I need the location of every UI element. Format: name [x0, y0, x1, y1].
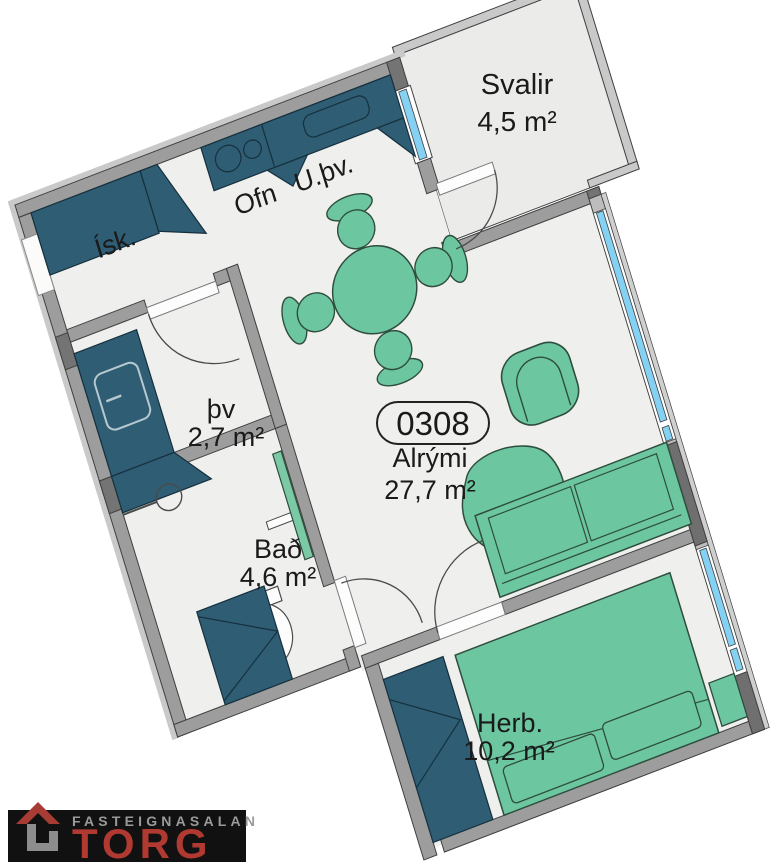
label-thvottahus: þv — [207, 394, 236, 424]
logo-brand-text: TORG — [72, 820, 213, 867]
label-bad: Bað — [254, 534, 302, 564]
label-alrymi-area: 27,7 m² — [384, 475, 476, 505]
label-alrymi: Alrými — [393, 443, 468, 473]
label-thvottahus-area: 2,7 m² — [188, 422, 265, 452]
agency-logo: FASTEIGNASALAN TORG — [8, 802, 259, 867]
label-svalir: Svalir — [481, 69, 554, 101]
label-svalir-area: 4,5 m² — [477, 106, 556, 137]
label-herbergi-area: 10,2 m² — [463, 736, 555, 766]
floor-plan-page: Ísk. Ofn U.þv. Svalir 4,5 m² 0308 Alrými… — [0, 0, 783, 867]
floor-plan: Ísk. Ofn U.þv. Svalir 4,5 m² 0308 Alrými… — [0, 0, 783, 867]
label-herbergi: Herb. — [477, 708, 543, 738]
label-bad-area: 4,6 m² — [240, 562, 317, 592]
unit-number: 0308 — [396, 405, 469, 442]
